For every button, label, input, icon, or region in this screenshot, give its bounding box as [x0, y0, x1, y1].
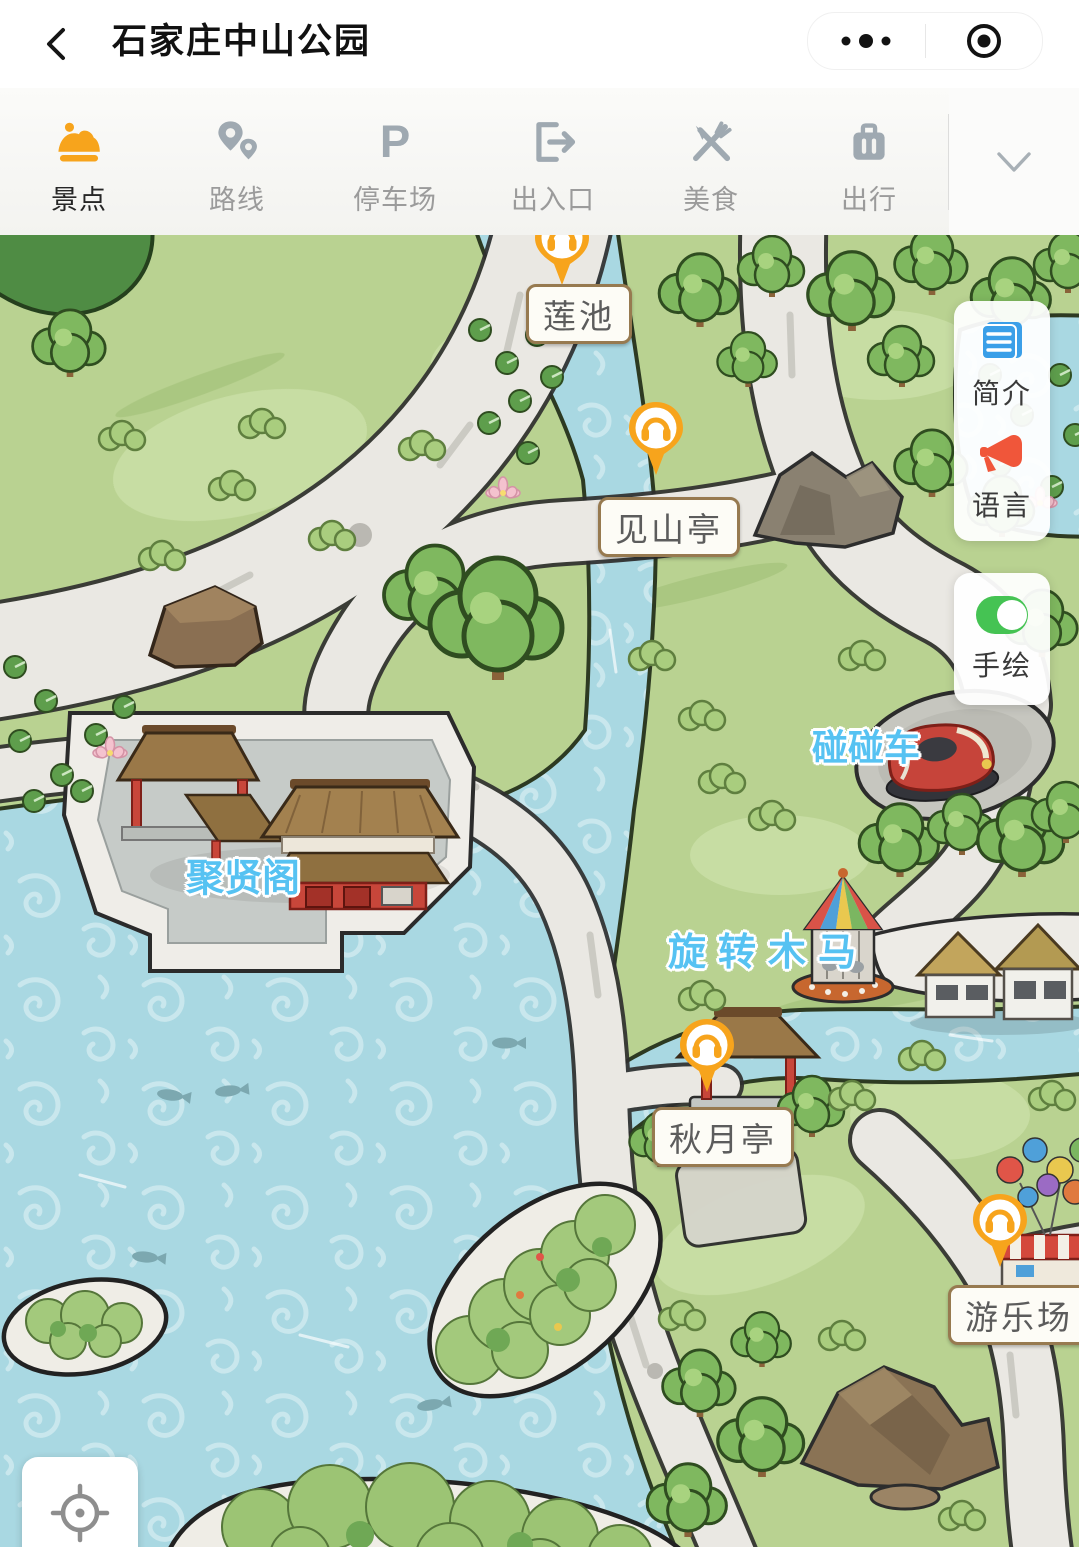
- audio-marker-pin-qiuyueting[interactable]: [676, 1017, 738, 1095]
- toolbar-item-gate[interactable]: 出入口: [474, 88, 632, 235]
- hand-drawn-toggle[interactable]: 手绘: [954, 573, 1050, 705]
- chevron-down-icon: [991, 147, 1037, 177]
- toolbar-item-travel[interactable]: 出行: [790, 88, 948, 235]
- toolbar-item-food[interactable]: 美食: [632, 88, 790, 235]
- parking-icon: P: [369, 116, 421, 168]
- poi-label-xuanzhuanmuma: 旋转木马: [668, 921, 868, 976]
- poi-label-pengpengche: 碰碰车: [812, 719, 920, 771]
- toolbar-item-scenic[interactable]: 景点: [0, 88, 158, 235]
- wechat-capsule: [807, 12, 1043, 70]
- headphones-pin-icon: [531, 235, 593, 288]
- back-icon[interactable]: [36, 22, 80, 66]
- nav-bar: 石家庄中山公园: [0, 0, 1079, 88]
- circle-target-icon[interactable]: [926, 13, 1043, 69]
- svg-text:P: P: [380, 116, 410, 167]
- locate-me-button[interactable]: [22, 1457, 138, 1547]
- map-tools-panel: 简介 语言: [954, 301, 1050, 541]
- intro-button[interactable]: 简介: [972, 318, 1032, 412]
- more-dots-icon[interactable]: [808, 13, 925, 69]
- page-title: 石家庄中山公园: [112, 0, 371, 88]
- toolbar-collapse-button[interactable]: [949, 88, 1079, 235]
- audio-marker-pin-jianshanting[interactable]: [625, 400, 687, 478]
- park-map-illustration: [0, 235, 1079, 1547]
- toolbar-item-route[interactable]: 路线: [158, 88, 316, 235]
- crosshair-icon: [48, 1481, 112, 1545]
- route-pins-icon: [211, 116, 263, 168]
- map-toolbar: 景点 路线 P 停车场: [0, 88, 1079, 235]
- map-label-qiuyueting[interactable]: 秋月亭: [652, 1107, 794, 1167]
- map-label-lianchi[interactable]: 莲池: [526, 284, 632, 344]
- headphones-pin-icon: [625, 400, 687, 478]
- park-map[interactable]: 莲池 见山亭 秋月亭 游乐场 聚贤阁 碰碰车 旋转木马 简介: [0, 235, 1079, 1547]
- gate-exit-icon: [527, 116, 579, 168]
- language-button[interactable]: 语言: [972, 428, 1032, 524]
- luggage-icon: [843, 116, 895, 168]
- food-icon: [685, 116, 737, 168]
- poi-label-juxiange: 聚贤阁: [186, 847, 300, 902]
- megaphone-icon: [976, 428, 1028, 476]
- audio-marker-pin-lianchi[interactable]: [531, 235, 593, 288]
- headphones-pin-icon: [969, 1192, 1031, 1270]
- map-label-jianshanting[interactable]: 见山亭: [598, 497, 740, 557]
- mini-program-screen: 石家庄中山公园: [0, 0, 1079, 1547]
- audio-marker-pin-youlechang[interactable]: [969, 1192, 1031, 1270]
- map-label-youlechang[interactable]: 游乐场: [948, 1285, 1079, 1345]
- headphones-pin-icon: [676, 1017, 738, 1095]
- toggle-moon-icon: [974, 594, 1030, 636]
- scenic-spot-icon: [53, 116, 105, 168]
- document-icon: [977, 318, 1027, 364]
- toolbar-item-parking[interactable]: P 停车场: [316, 88, 474, 235]
